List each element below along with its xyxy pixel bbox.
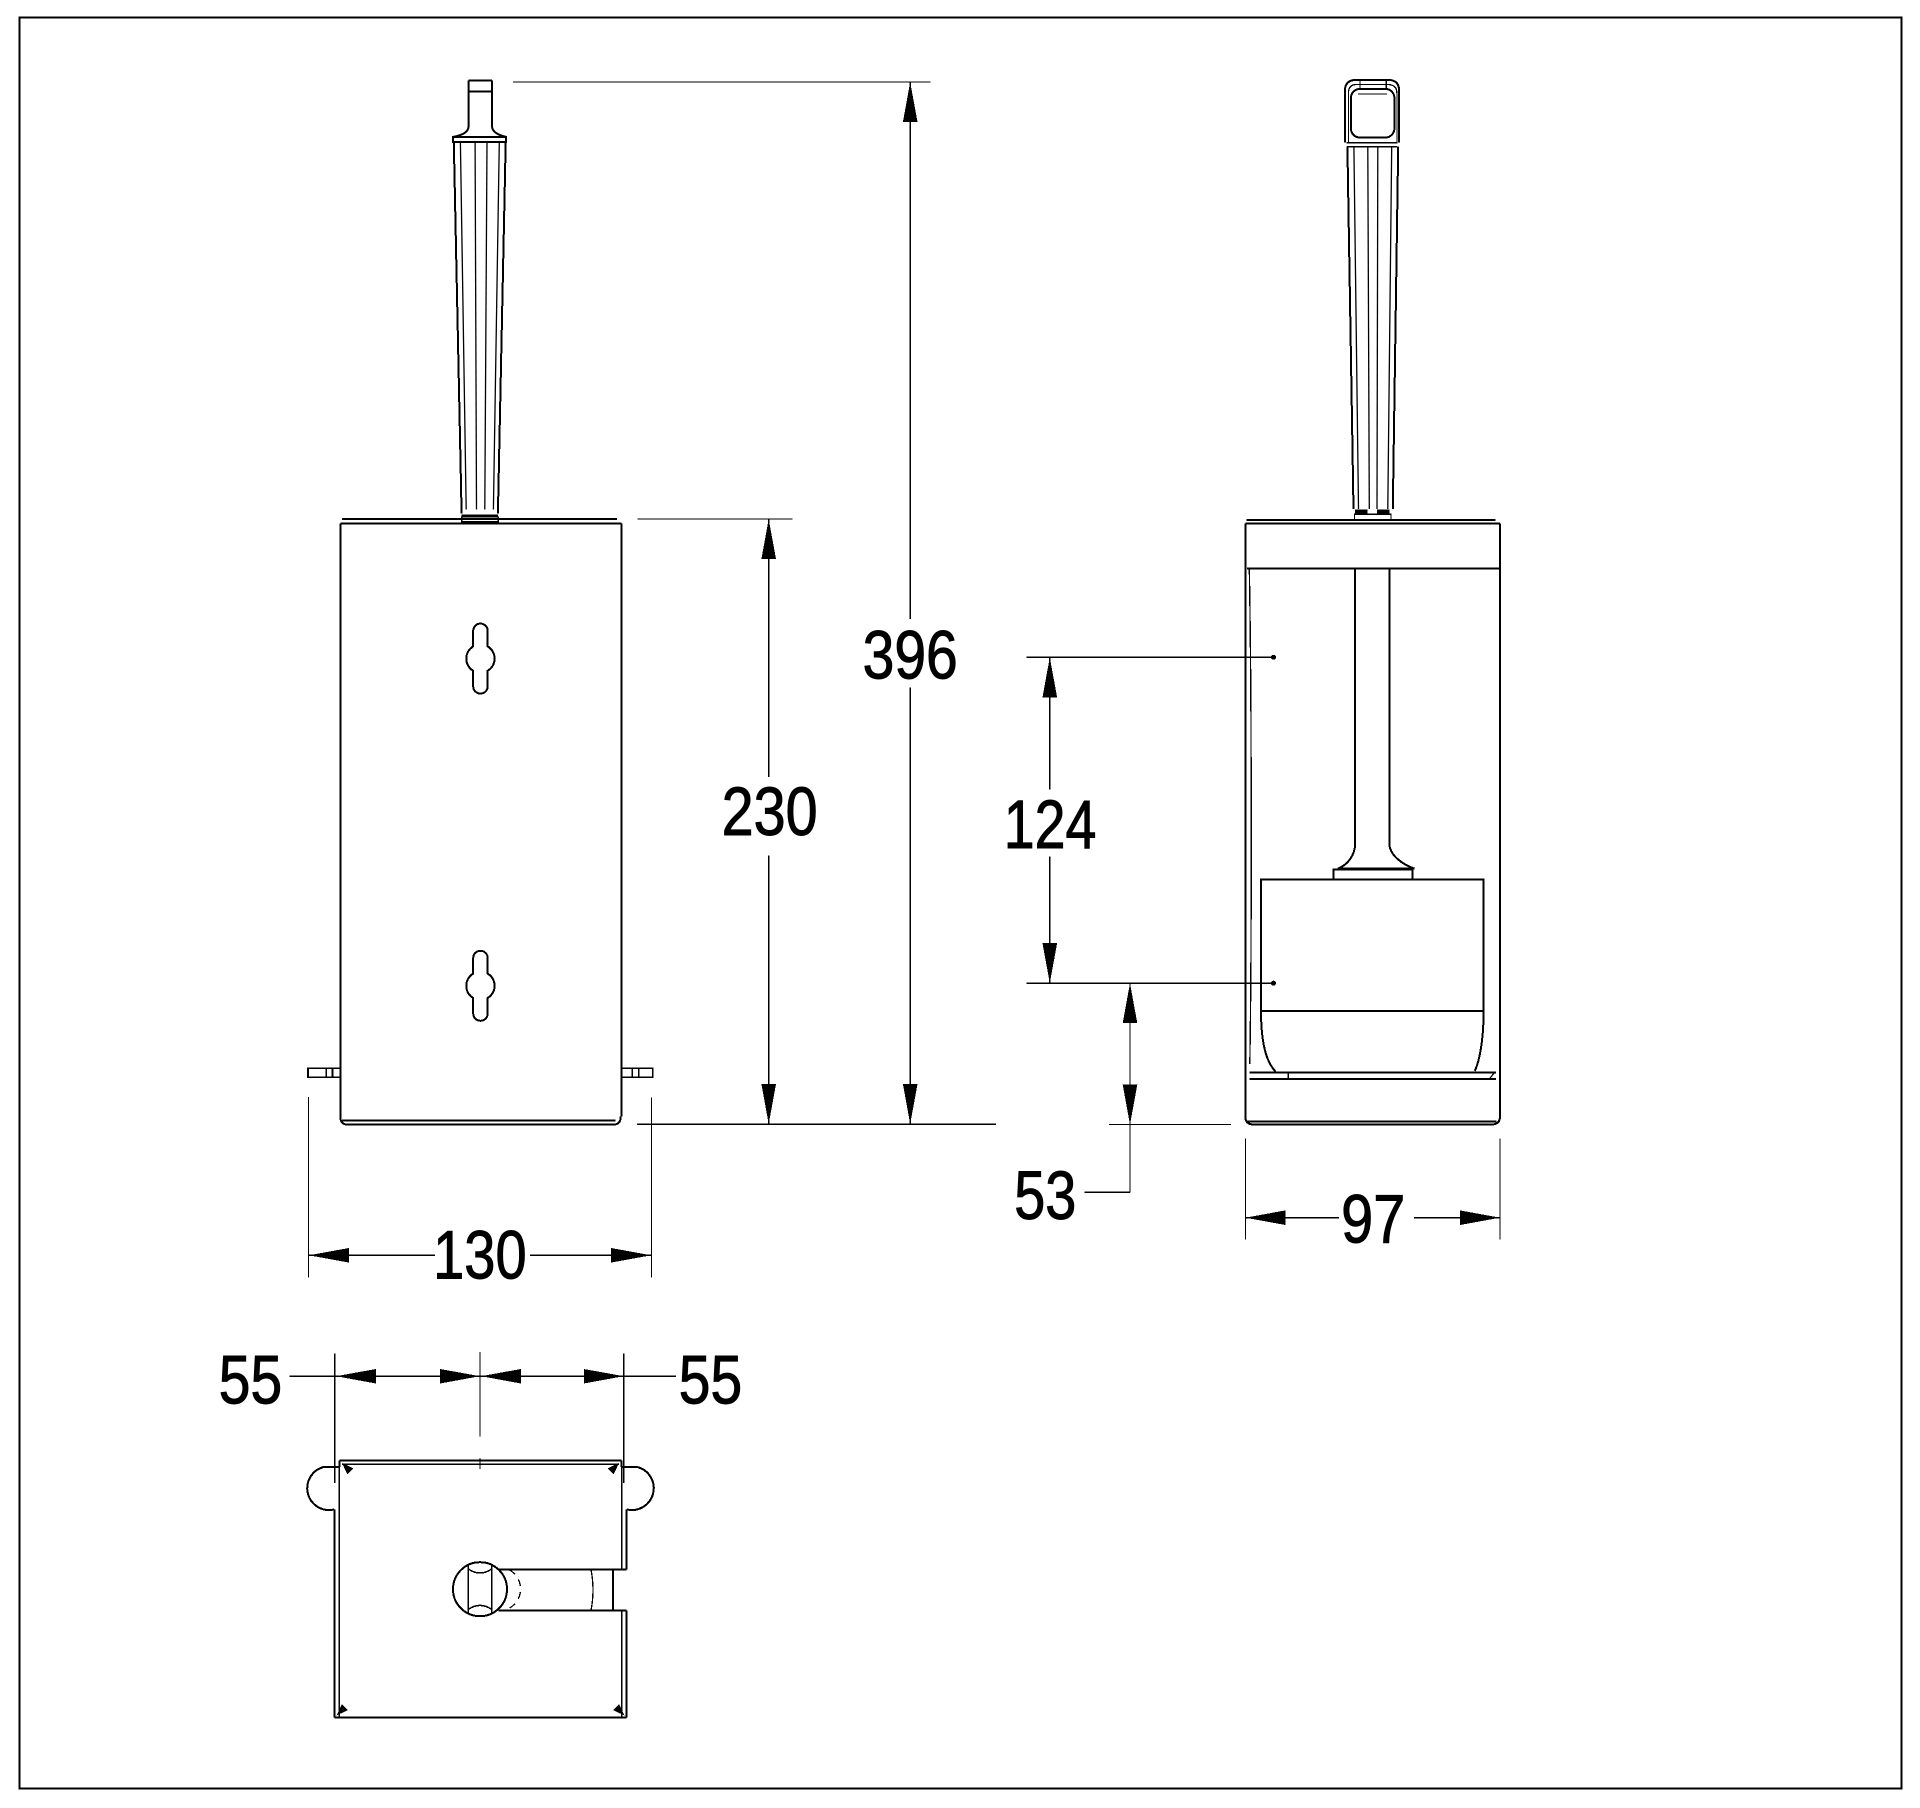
svg-text:53: 53 <box>1014 1157 1076 1234</box>
svg-text:55: 55 <box>679 1341 742 1418</box>
svg-text:396: 396 <box>863 617 958 694</box>
svg-text:97: 97 <box>1341 1180 1405 1257</box>
svg-text:130: 130 <box>433 1217 527 1294</box>
svg-text:55: 55 <box>219 1341 282 1418</box>
svg-text:124: 124 <box>1004 786 1097 863</box>
svg-text:230: 230 <box>722 773 818 850</box>
